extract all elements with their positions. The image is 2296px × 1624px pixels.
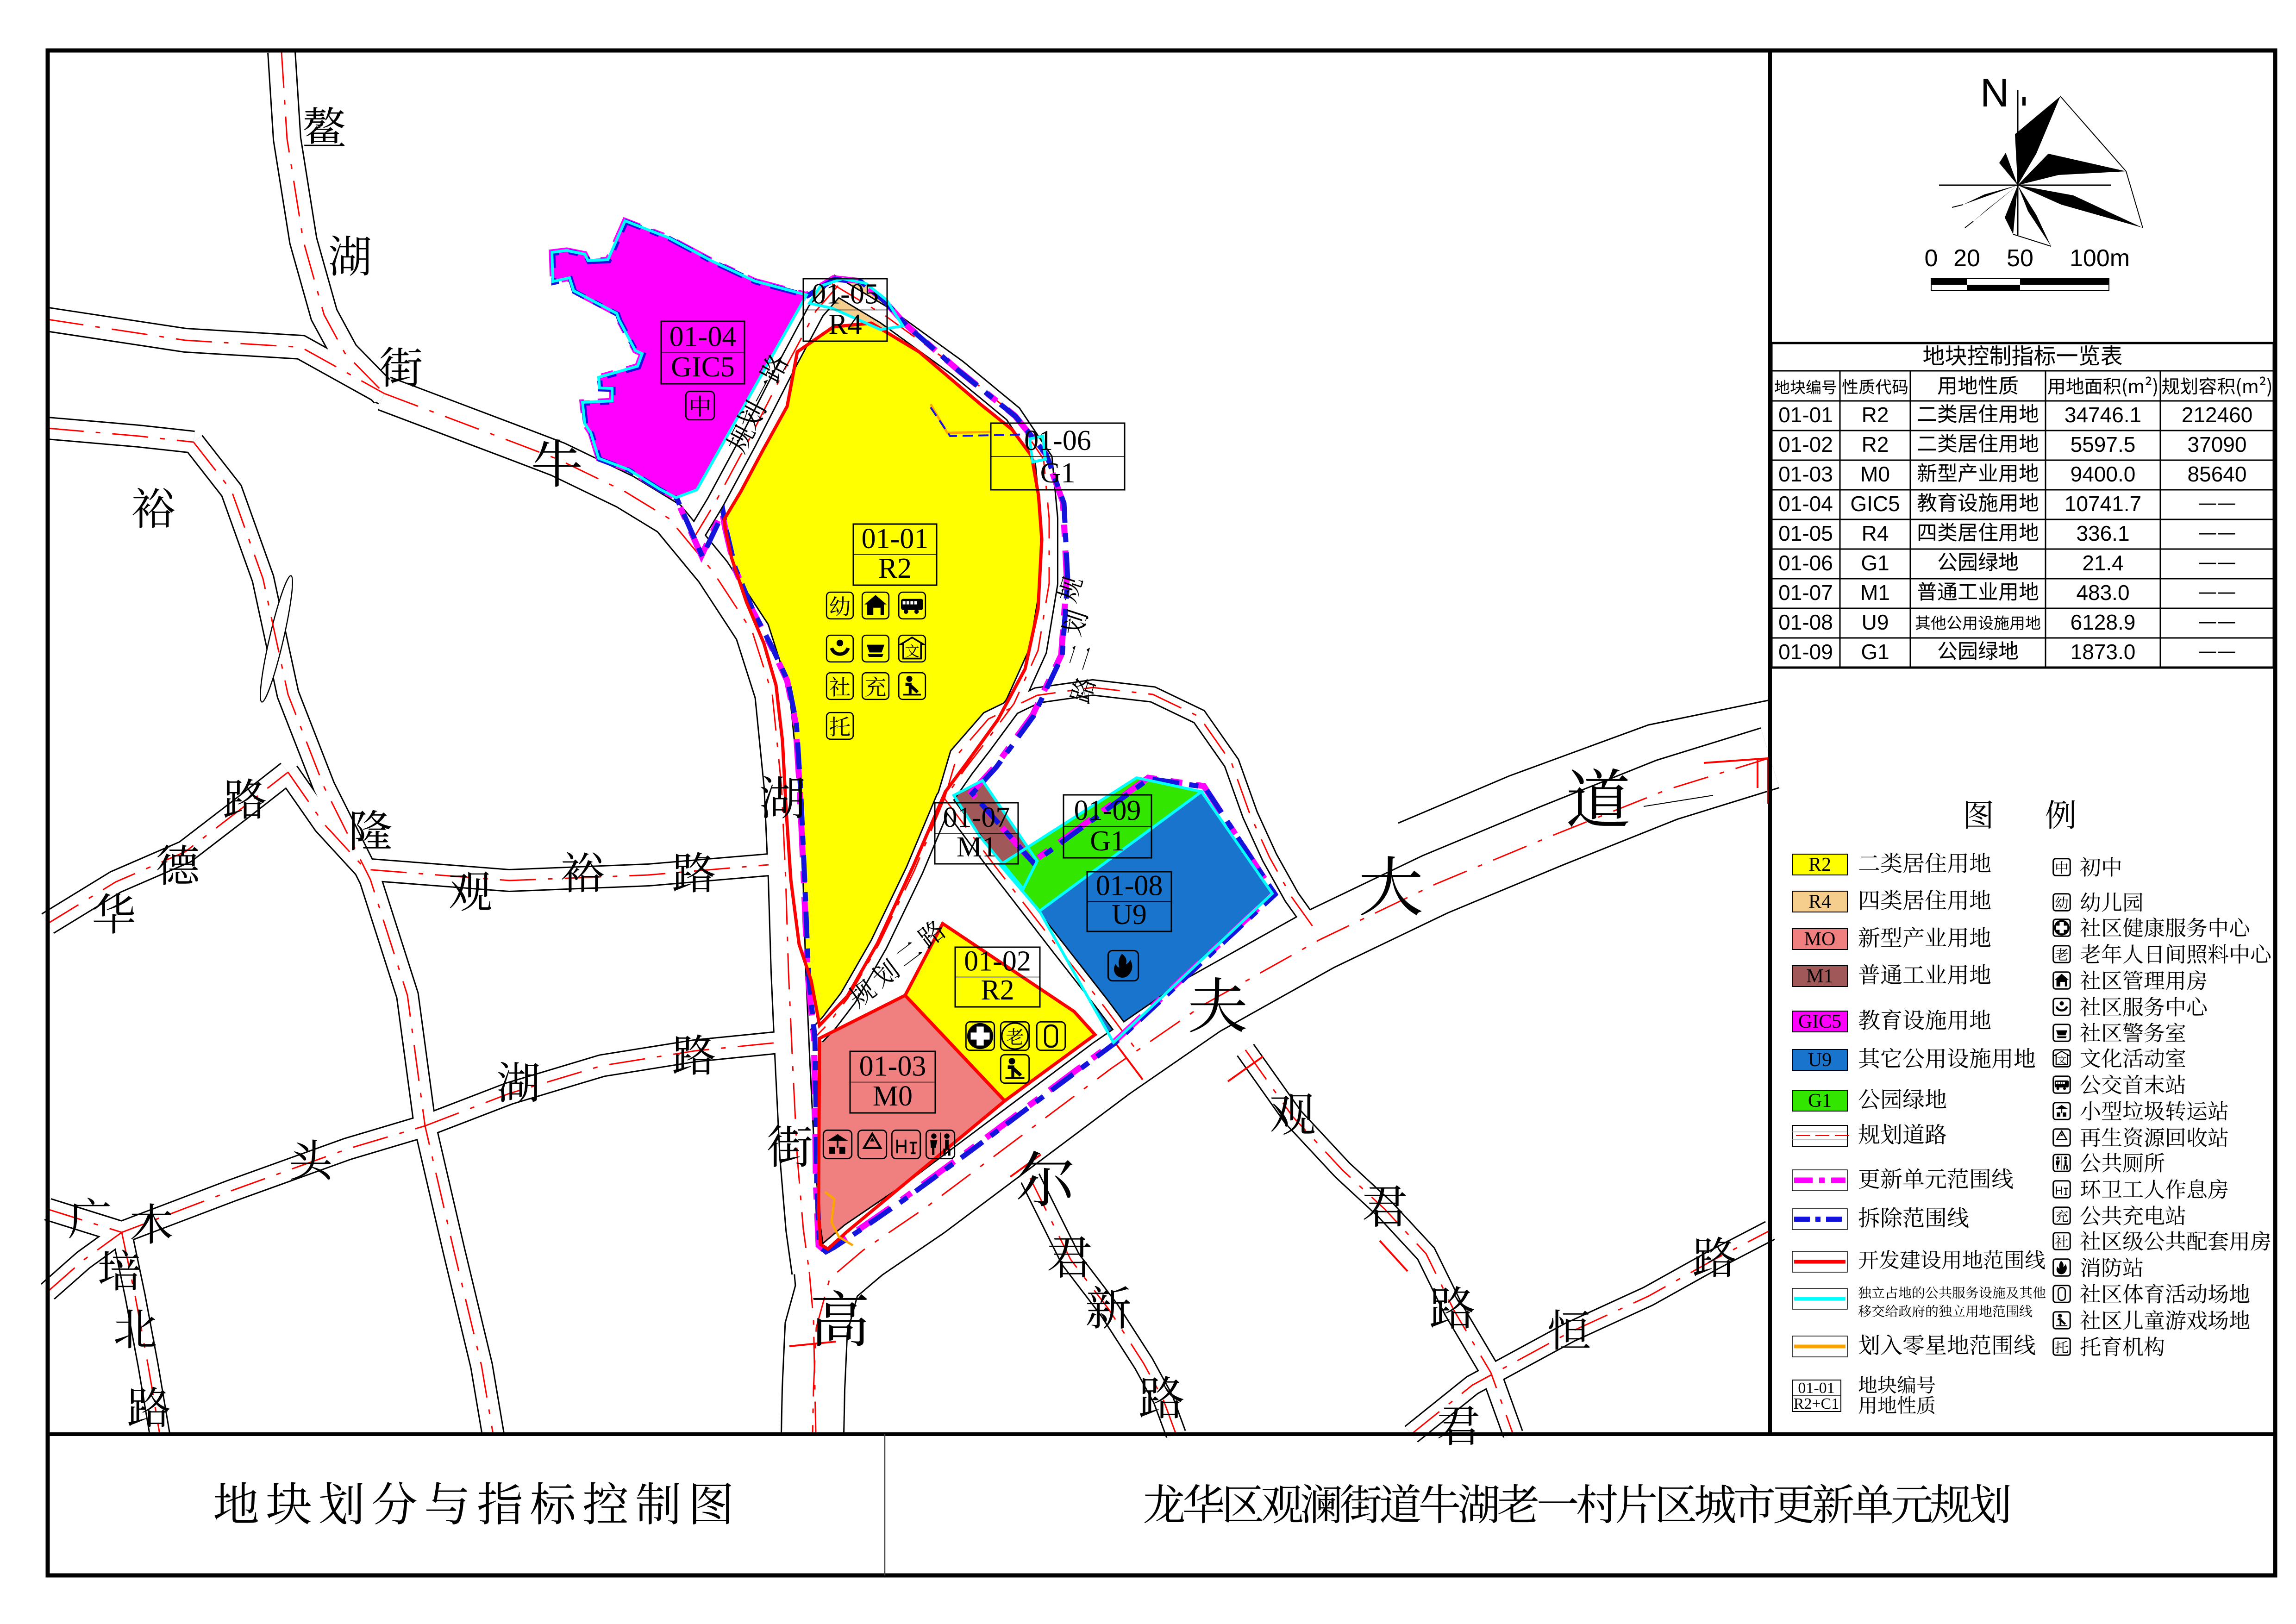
svg-text:01-01: 01-01: [1798, 1380, 1834, 1397]
svg-text:01-05: 01-05: [812, 279, 879, 310]
svg-text:01-07: 01-07: [943, 802, 1010, 833]
svg-text:212460: 212460: [2182, 403, 2253, 427]
svg-text:GIC5: GIC5: [1850, 492, 1900, 516]
svg-text:01-03: 01-03: [859, 1051, 926, 1082]
svg-text:R2: R2: [1808, 854, 1831, 875]
svg-text:0: 0: [1925, 245, 1938, 272]
svg-text:MO: MO: [1804, 929, 1836, 950]
svg-text:M0: M0: [1860, 462, 1890, 486]
svg-text:01-02: 01-02: [964, 946, 1031, 977]
svg-text:M1: M1: [1806, 966, 1833, 987]
svg-text:01-09: 01-09: [1778, 640, 1833, 664]
svg-text:34746.1: 34746.1: [2065, 403, 2141, 427]
svg-text:G1: G1: [1040, 457, 1076, 489]
svg-text:R2: R2: [878, 553, 912, 584]
svg-text:G1: G1: [1861, 640, 1889, 664]
svg-text:336.1: 336.1: [2076, 521, 2129, 545]
svg-text:R4: R4: [828, 309, 862, 340]
svg-text:R2: R2: [1862, 403, 1889, 427]
svg-text:R2: R2: [981, 974, 1014, 1006]
svg-text:100m: 100m: [2070, 245, 2130, 272]
svg-text:01-04: 01-04: [1778, 492, 1833, 516]
svg-text:M0: M0: [873, 1081, 913, 1112]
svg-text:G1: G1: [1808, 1090, 1832, 1112]
svg-text:01-01: 01-01: [862, 523, 929, 555]
svg-text:01-04: 01-04: [669, 321, 737, 353]
svg-text:483.0: 483.0: [2076, 581, 2129, 605]
svg-text:GIC5: GIC5: [1798, 1011, 1841, 1032]
svg-text:01-08: 01-08: [1096, 870, 1163, 902]
svg-text:9400.0: 9400.0: [2071, 462, 2136, 486]
svg-text:1873.0: 1873.0: [2071, 640, 2136, 664]
svg-text:R4: R4: [1808, 891, 1831, 912]
svg-text:01-05: 01-05: [1778, 521, 1833, 545]
svg-text:01-09: 01-09: [1074, 795, 1141, 826]
svg-text:50: 50: [2007, 245, 2033, 272]
svg-text:85640: 85640: [2188, 462, 2247, 486]
svg-text:01-07: 01-07: [1778, 581, 1833, 605]
svg-text:R4: R4: [1862, 521, 1889, 545]
svg-text:10741.7: 10741.7: [2065, 492, 2141, 516]
svg-text:G1: G1: [1090, 825, 1125, 857]
svg-text:N: N: [1980, 71, 2009, 115]
svg-text:20: 20: [1953, 245, 1980, 272]
svg-text:U9: U9: [1862, 610, 1889, 634]
svg-text:U9: U9: [1112, 899, 1147, 931]
svg-text:M1: M1: [1860, 581, 1890, 605]
svg-text:5597.5: 5597.5: [2071, 432, 2136, 456]
svg-text:GIC5: GIC5: [671, 351, 735, 383]
svg-text:6128.9: 6128.9: [2071, 610, 2136, 634]
svg-text:R2+C1: R2+C1: [1794, 1395, 1839, 1412]
svg-text:01-03: 01-03: [1778, 462, 1833, 486]
svg-text:G1: G1: [1861, 551, 1889, 575]
svg-text:37090: 37090: [2188, 432, 2247, 456]
svg-text:01-06: 01-06: [1024, 425, 1091, 456]
svg-text:01-06: 01-06: [1778, 551, 1833, 575]
svg-text:21.4: 21.4: [2082, 551, 2124, 575]
svg-text:M1: M1: [957, 831, 996, 863]
svg-text:01-08: 01-08: [1778, 610, 1833, 634]
svg-text:R2: R2: [1862, 432, 1889, 456]
svg-text:01-01: 01-01: [1778, 403, 1833, 427]
svg-text:01-02: 01-02: [1778, 432, 1833, 456]
svg-text:U9: U9: [1808, 1049, 1832, 1071]
